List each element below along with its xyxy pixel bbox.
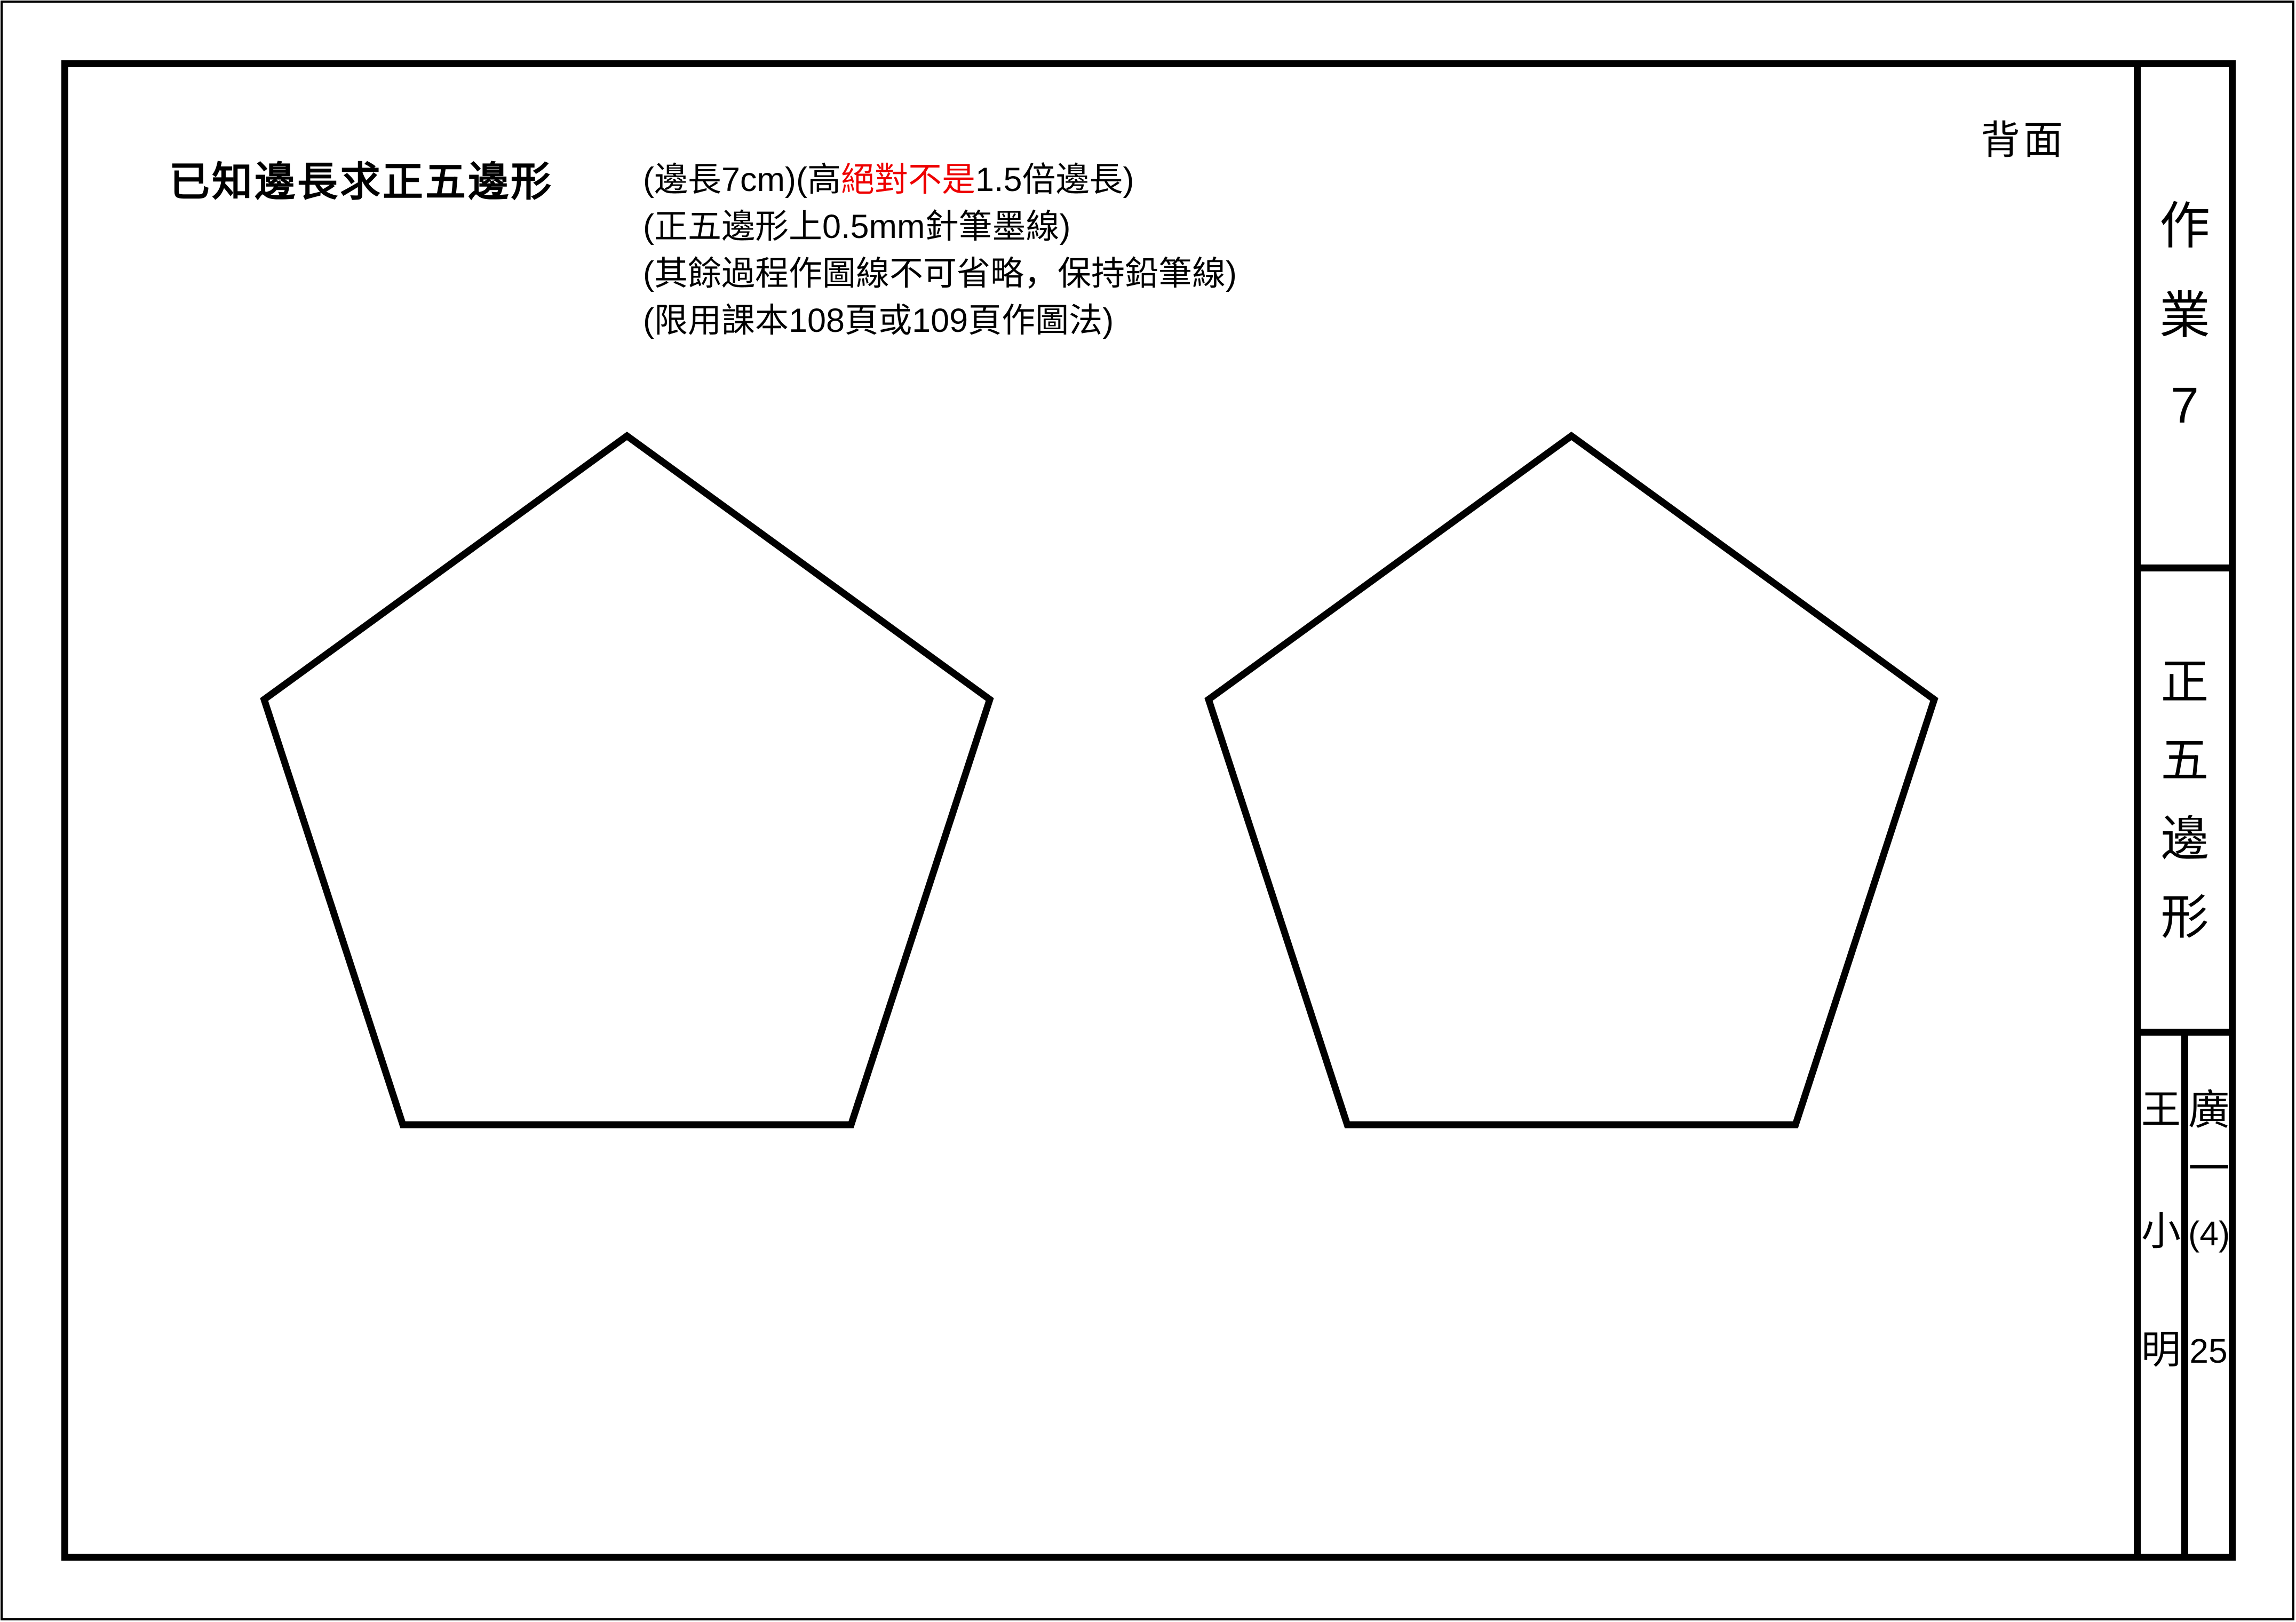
subject-char: 正 bbox=[2161, 643, 2209, 722]
assignment-char: 7 bbox=[2171, 361, 2199, 450]
subject-cell: 正 五 邊 形 bbox=[2141, 571, 2229, 1029]
instructions: (邊長7cm)(高絕對不是1.5倍邊長) (正五邊形上0.5mm針筆墨線) (其… bbox=[643, 156, 1237, 344]
pentagon-right bbox=[1209, 436, 1934, 1125]
emphasis-red-text: 絕對不是 bbox=[841, 161, 975, 198]
pentagon-left bbox=[264, 436, 990, 1125]
assignment-char: 業 bbox=[2159, 271, 2210, 361]
back-side-label: 背面 bbox=[1981, 118, 2066, 162]
class-info-item: 廣 bbox=[2188, 1086, 2229, 1134]
worksheet-title: 已知邊長求正五邊形 bbox=[169, 160, 553, 205]
class-info-cell: 廣 一 (4) 25 bbox=[2188, 1036, 2229, 1554]
subject-char: 邊 bbox=[2161, 800, 2209, 879]
class-info-item: 一 bbox=[2188, 1144, 2229, 1192]
student-name-char: 小 bbox=[2141, 1207, 2181, 1255]
subject-char: 形 bbox=[2161, 879, 2209, 957]
instruction-line-1-suffix: 1.5倍邊長) bbox=[975, 161, 1134, 198]
instruction-line-4: (限用課本108頁或109頁作圖法) bbox=[643, 297, 1237, 344]
instruction-line-1-prefix: (邊長7cm)(高 bbox=[643, 161, 841, 198]
assignment-char: 作 bbox=[2159, 181, 2210, 271]
student-name-cell: 王 小 明 bbox=[2141, 1036, 2181, 1554]
instruction-line-3: (其餘過程作圖線不可省略，保持鉛筆線) bbox=[643, 250, 1237, 297]
student-name-char: 王 bbox=[2141, 1086, 2181, 1134]
instruction-line-1: (邊長7cm)(高絕對不是1.5倍邊長) bbox=[643, 156, 1237, 203]
student-name-char: 明 bbox=[2141, 1326, 2181, 1374]
subject-char: 五 bbox=[2161, 722, 2209, 800]
instruction-line-2: (正五邊形上0.5mm針筆墨線) bbox=[643, 203, 1237, 250]
class-info-item: (4) bbox=[2188, 1210, 2229, 1258]
class-info-item: 25 bbox=[2188, 1327, 2229, 1375]
worksheet-page: { "document": { "title": "已知邊長求正五邊形", "b… bbox=[0, 0, 2296, 1622]
assignment-cell: 作 業 7 bbox=[2141, 67, 2229, 564]
